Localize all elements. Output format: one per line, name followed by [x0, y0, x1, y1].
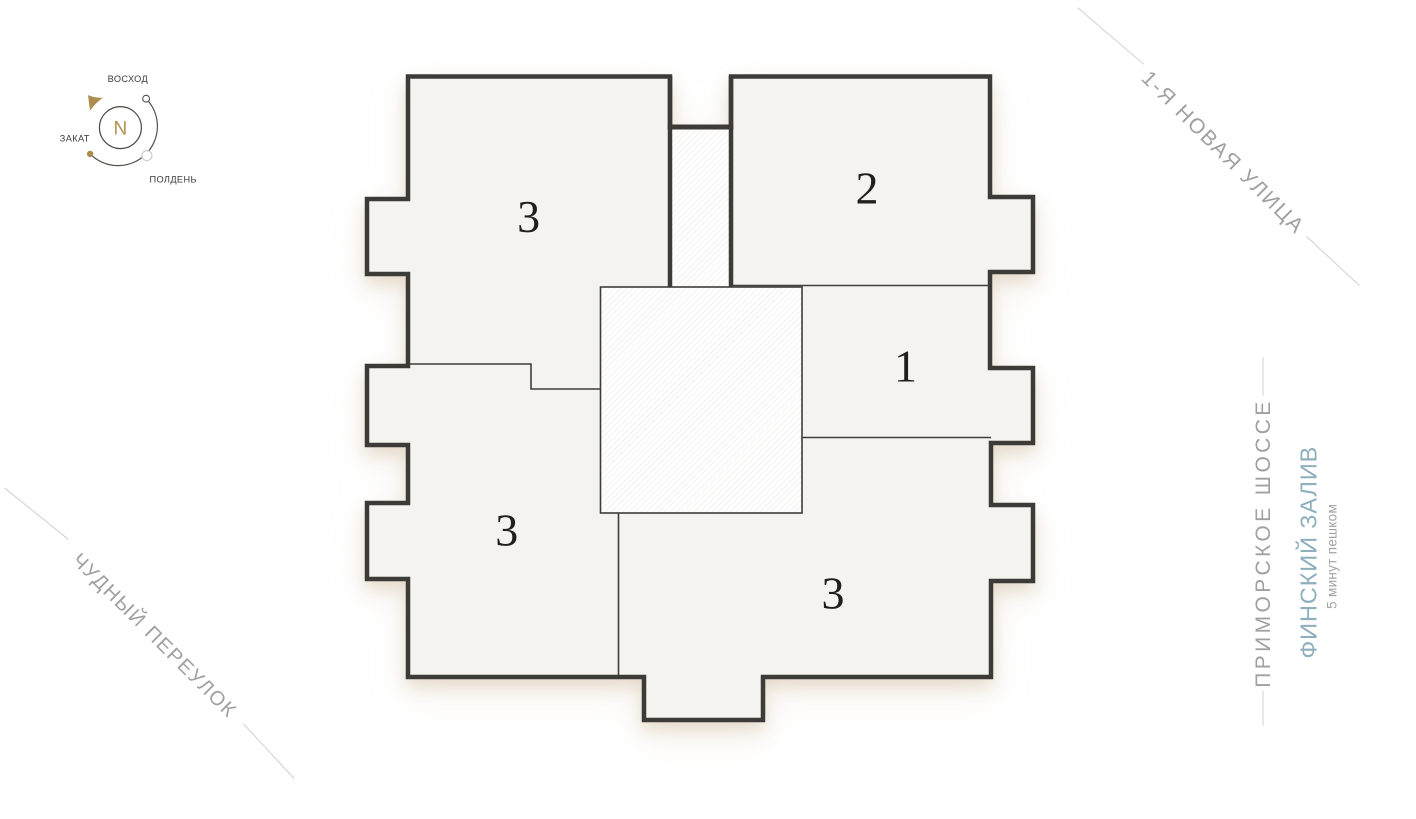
svg-text:2: 2 [856, 163, 879, 214]
svg-text:ПОЛДЕНЬ: ПОЛДЕНЬ [149, 175, 197, 185]
svg-text:3: 3 [822, 568, 845, 619]
svg-text:3: 3 [517, 191, 540, 242]
svg-text:N: N [114, 119, 128, 140]
svg-text:3: 3 [495, 505, 518, 556]
svg-text:ВОСХОД: ВОСХОД [108, 74, 149, 84]
svg-text:ЧУДНЫЙ ПЕРЕУЛОК: ЧУДНЫЙ ПЕРЕУЛОК [67, 548, 242, 723]
svg-text:1-Я НОВАЯ УЛИЦА: 1-Я НОВАЯ УЛИЦА [1137, 67, 1309, 239]
svg-text:5 минут пешком: 5 минут пешком [1325, 504, 1340, 609]
svg-text:ФИНСКИЙ ЗАЛИВ: ФИНСКИЙ ЗАЛИВ [1295, 446, 1322, 659]
svg-text:ПРИМОРСКОЕ ШОССЕ: ПРИМОРСКОЕ ШОССЕ [1252, 398, 1275, 687]
svg-text:1: 1 [894, 341, 917, 392]
svg-text:ЗАКАТ: ЗАКАТ [60, 134, 90, 144]
